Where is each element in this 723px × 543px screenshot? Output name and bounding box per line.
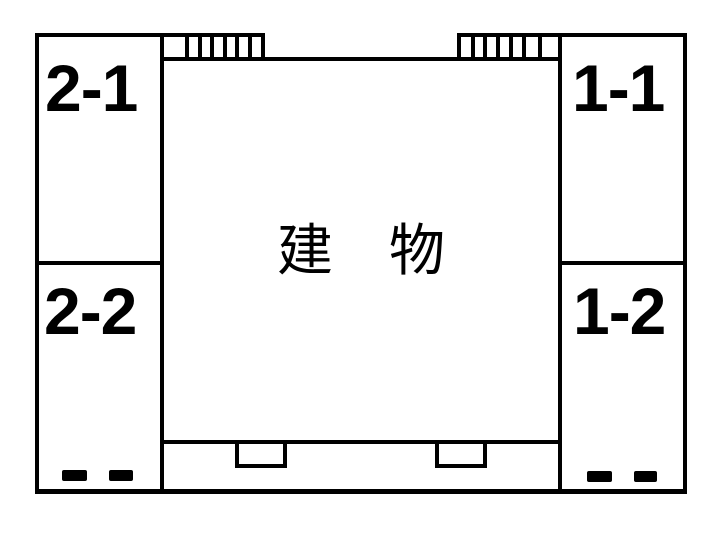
hatch-rung (471, 37, 475, 57)
entry-step-left-icon (235, 444, 287, 468)
wheel-stopper-icon (62, 470, 87, 481)
unit-label-1-1: 1-1 (572, 55, 664, 121)
stairs-hatch-right-icon (457, 33, 542, 61)
wheel-stopper-icon (634, 471, 657, 482)
hatch-rung (483, 37, 487, 57)
left-units-divider (35, 261, 164, 265)
hatch-rung (185, 37, 189, 57)
right-wall-lower-segment (558, 440, 562, 494)
building-label: 建 物 (277, 223, 445, 279)
hatch-rung (210, 37, 214, 57)
hatch-rung (248, 37, 252, 57)
bottom-boundary-line (35, 489, 687, 494)
unit-label-1-2: 1-2 (573, 278, 665, 344)
unit-label-2-1: 2-1 (45, 55, 137, 121)
hatch-rung (509, 37, 513, 57)
building-outline: 建 物 (160, 57, 562, 444)
floor-plan-canvas: 建 物 2-1 2-2 1-1 1-2 (0, 0, 723, 543)
right-units-divider (558, 261, 687, 265)
hatch-rung (223, 37, 227, 57)
hatch-rung (496, 37, 500, 57)
unit-label-2-2: 2-2 (44, 278, 136, 344)
entry-step-right-icon (435, 444, 487, 468)
stairs-hatch-left-icon (160, 33, 265, 61)
hatch-rung (235, 37, 239, 57)
wheel-stopper-icon (587, 471, 612, 482)
hatch-rung (198, 37, 202, 57)
wheel-stopper-icon (109, 470, 133, 481)
right-wall-upper-segment (558, 33, 562, 61)
left-wall-lower-segment (160, 440, 164, 494)
hatch-rung (522, 37, 526, 57)
